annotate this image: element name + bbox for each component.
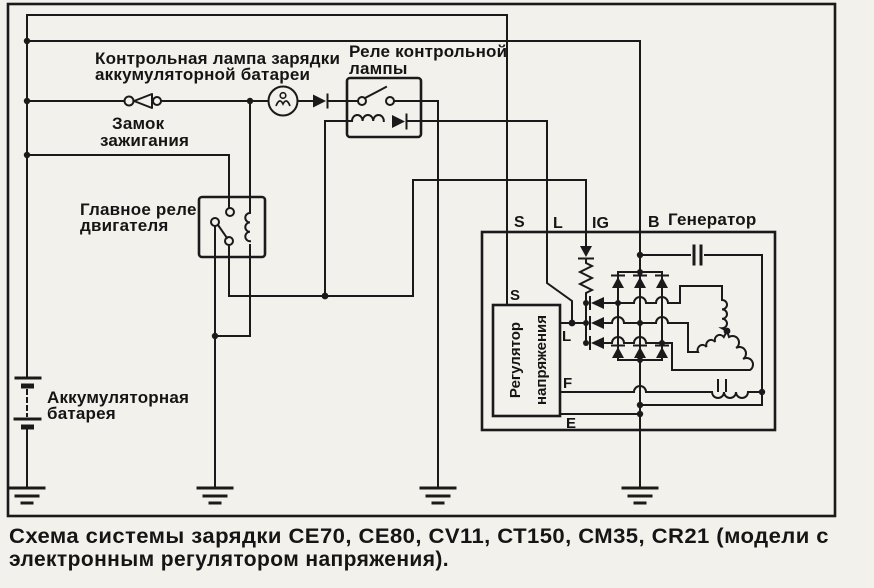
main-relay-contact-top [226, 208, 234, 216]
battery-label-2: батарея [47, 404, 116, 423]
regulator-label-2: напряжения [533, 315, 550, 405]
generator-label: Генератор [668, 210, 756, 229]
caption-line-1: Схема системы зарядки СЕ70, СЕ80, CV11, … [9, 525, 829, 548]
charge-lamp-label-2: аккумуляторной батареи [95, 65, 310, 84]
terminal-b-label: B [648, 214, 660, 231]
ignition-label-2: зажигания [100, 131, 189, 150]
caption-line-2: электронным регулятором напряжения). [9, 548, 449, 571]
regulator-terminal-e: E [566, 415, 576, 432]
regulator-terminal-l: L [562, 328, 571, 345]
terminal-s-label: S [514, 214, 525, 231]
ignition-contact-left [125, 97, 134, 106]
lamp-relay-label-2: лампы [349, 59, 408, 78]
wiring-diagram: Замок зажигания Контрольная лампа зарядк… [0, 0, 874, 588]
regulator-terminal-s: S [510, 287, 520, 304]
ignition-contact-right [153, 97, 161, 105]
terminal-ig-label: IG [592, 215, 609, 232]
regulator-label-1: Регулятор [507, 322, 524, 398]
terminal-l-label: L [553, 215, 563, 232]
schematic-page: Замок зажигания Контрольная лампа зарядк… [0, 0, 874, 588]
main-relay-label-2: двигателя [80, 216, 169, 235]
regulator-terminal-f: F [563, 375, 572, 392]
lamp-bulb [269, 87, 298, 116]
lamp-relay-contact-right [386, 97, 394, 105]
